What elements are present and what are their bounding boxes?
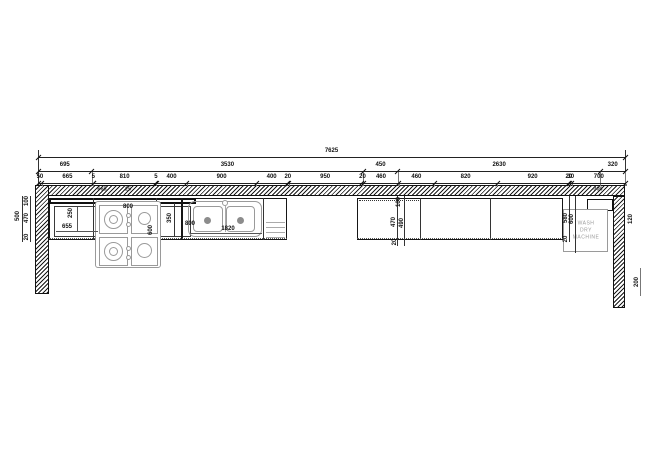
burner-ring-3-inner: [109, 247, 118, 256]
dim-label-row3-7: 400: [267, 174, 277, 180]
stub-row3-5: [187, 184, 188, 186]
counter-front-edge-left: [49, 238, 287, 239]
dim-label-row2-2: 450: [376, 162, 386, 168]
label-dim-350-sink: 350: [167, 213, 173, 223]
dim-line-left-overall: [22, 196, 23, 242]
burner-ring-1-inner: [109, 215, 118, 224]
dim-label-row3-14: 920: [528, 174, 538, 180]
label-hatch-left-a: 665: [97, 187, 106, 193]
label-dim-20-right: 20: [563, 236, 569, 243]
dim-label-row3-12: 460: [411, 174, 421, 180]
stub-row3-11: [399, 184, 400, 186]
dim-line-right-2: [575, 196, 576, 253]
counter-front-edge-right: [357, 238, 563, 239]
dim-label-row3-10: 20: [359, 174, 366, 180]
washer-label-line1: WASH: [578, 222, 595, 227]
dim-label-overall-0: 7625: [325, 148, 338, 154]
stub-row3-0: [42, 184, 43, 186]
label-dim-600-cooktop: 600: [148, 225, 154, 235]
label-dim-250-cabinet: 250: [68, 208, 74, 218]
stub-row3-17: [626, 184, 627, 186]
knob-3: [126, 246, 131, 251]
label-dim-100-mid: 100: [396, 197, 402, 207]
washer-label-line3: MACHINE: [573, 236, 600, 241]
dim-line-655: [56, 231, 98, 232]
dim-label-row3-11: 460: [376, 174, 386, 180]
label-dim-120-wall: 120: [628, 214, 634, 224]
counter-back-dashed: [359, 200, 419, 201]
counter-run-right: [357, 198, 563, 240]
label-hatch-right: 300: [593, 187, 602, 193]
dim-line-left-chain: [30, 196, 31, 242]
sink-drain-left: [204, 217, 211, 224]
stub-row3-12: [434, 184, 435, 186]
wall-hatch-top: [35, 185, 625, 196]
stub-row3-2: [93, 184, 94, 186]
kitchen-plan-drawing: WASH DRY MACHINE 76256953530450263032050…: [0, 0, 671, 449]
dim-label-row3-16: 30: [567, 174, 574, 180]
label-hatch-left-b: 25: [125, 187, 131, 193]
stub-row3-10: [363, 184, 364, 186]
dishwasher-line-1: [266, 222, 285, 223]
dim-label-row2-0: 695: [60, 162, 70, 168]
knob-2: [126, 222, 131, 227]
burner-ring-2: [138, 212, 151, 225]
dim-label-row3-4: 5: [154, 174, 157, 180]
wall-hatch-right: [613, 196, 625, 308]
dim-row-row3: [38, 183, 626, 184]
dim-label-row2-3: 2630: [492, 162, 505, 168]
knob-1: [126, 213, 131, 218]
knob-4: [126, 255, 131, 260]
label-dim-500-left: 500: [15, 211, 21, 221]
dim-label-row3-17: 700: [594, 174, 604, 180]
dim-line-250: [77, 207, 78, 231]
dim-row-overall: [38, 157, 625, 158]
stub-row3-4: [156, 184, 157, 186]
dim-label-row3-2: 5: [92, 174, 95, 180]
washer-label-line2: DRY: [580, 229, 592, 234]
cabinet-divider-1: [93, 198, 94, 240]
label-dim-20-mid: 20: [392, 239, 398, 246]
label-dim-655-cabinet: 655: [62, 224, 72, 230]
cabinet-divider-4: [263, 198, 264, 240]
dim-label-row3-9: 950: [320, 174, 330, 180]
dim-label-row2-1: 3530: [221, 162, 234, 168]
dim-label-row3-8: 20: [284, 174, 291, 180]
sink-drain-right: [237, 217, 244, 224]
stub-row3-6: [256, 184, 257, 186]
label-dim-100-left: 100: [24, 196, 30, 206]
dim-label-row3-0: 50: [37, 174, 44, 180]
dishwasher-line-3: [266, 232, 285, 233]
label-dim-1820-sink: 1820: [221, 226, 234, 232]
label-dim-470-left: 470: [24, 213, 30, 223]
dim-label-row3-6: 900: [217, 174, 227, 180]
dim-line-1820: [190, 233, 262, 234]
label-dim-600-right: 600: [569, 214, 575, 224]
dim-line-350: [174, 203, 175, 237]
label-dim-800-sink: 800: [185, 221, 195, 227]
cabinet-divider-3: [181, 198, 183, 240]
stub-row3-13: [497, 184, 498, 186]
runb-divider-2: [490, 198, 491, 240]
label-dim-20-left: 20: [24, 234, 30, 241]
dim-row-row2: [38, 171, 625, 172]
stub-row3-16: [572, 184, 573, 186]
dim-label-row3-1: 665: [62, 174, 72, 180]
dim-line-200: [640, 268, 641, 296]
wall-hatch-left: [35, 185, 49, 294]
label-dim-490-mid: 490: [399, 218, 405, 228]
dishwasher-line-2: [266, 227, 285, 228]
stub-row3-8: [289, 184, 290, 186]
label-dim-200-wall: 200: [634, 277, 640, 287]
dim-label-row3-5: 400: [167, 174, 177, 180]
dim-label-row3-3: 810: [120, 174, 130, 180]
runb-divider-1: [420, 198, 421, 240]
label-dim-800-cooktop: 800: [123, 204, 133, 210]
dim-label-row3-13: 820: [461, 174, 471, 180]
dim-label-row2-4: 320: [608, 162, 618, 168]
burner-ring-4: [137, 243, 152, 258]
label-dim-470-mid: 470: [391, 217, 397, 227]
